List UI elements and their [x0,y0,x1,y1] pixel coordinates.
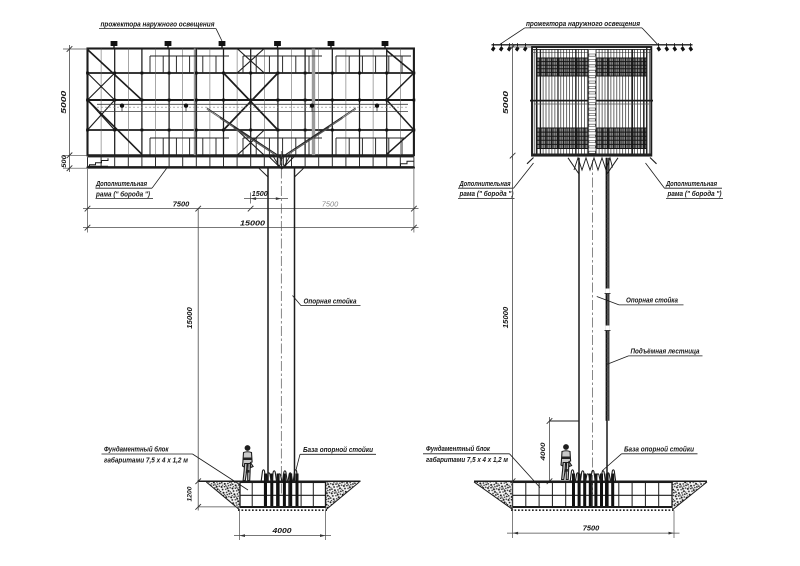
svg-text:Фундаментный блок: Фундаментный блок [426,444,490,453]
svg-text:габаритами 7,5 х 4 х 1,2 м: габаритами 7,5 х 4 х 1,2 м [104,456,188,464]
svg-text:прожектора наружного освещения: прожектора наружного освещения [101,20,216,29]
svg-text:База опорной стойки: База опорной стойки [303,445,374,454]
svg-text:15000: 15000 [240,218,265,227]
svg-text:1500: 1500 [252,189,268,198]
svg-text:15000: 15000 [185,307,194,329]
svg-text:500: 500 [61,155,68,168]
svg-text:рама (" борода "): рама (" борода ") [459,190,515,198]
svg-text:4000: 4000 [540,442,547,461]
svg-text:прожектора наружного освещения: прожектора наружного освещения [526,19,641,28]
svg-text:7500: 7500 [173,199,190,208]
svg-text:рама (" борода "): рама (" борода ") [95,189,150,198]
svg-text:габаритами 7,5 х 4 х 1,2 м: габаритами 7,5 х 4 х 1,2 м [426,456,508,464]
svg-text:5000: 5000 [59,91,68,114]
svg-text:Дополнительная: Дополнительная [459,181,511,188]
svg-text:7500: 7500 [322,199,339,208]
svg-text:Подъёмная лестница: Подъёмная лестница [631,347,700,356]
svg-text:Фундаментный блок: Фундаментный блок [104,444,169,453]
svg-text:Опорная стойка: Опорная стойка [626,296,678,305]
svg-text:Опорная стойка: Опорная стойка [304,296,357,305]
svg-text:Дополнительная: Дополнительная [665,181,717,188]
svg-text:1200: 1200 [186,486,193,501]
svg-text:рама (" борода "): рама (" борода ") [667,190,723,198]
svg-text:Дополнительная: Дополнительная [95,179,147,188]
svg-text:7500: 7500 [583,523,600,532]
svg-text:4000: 4000 [271,526,291,535]
svg-text:5000: 5000 [501,91,510,114]
svg-text:15000: 15000 [501,307,510,329]
svg-text:База опорной стойки: База опорной стойки [624,444,695,453]
